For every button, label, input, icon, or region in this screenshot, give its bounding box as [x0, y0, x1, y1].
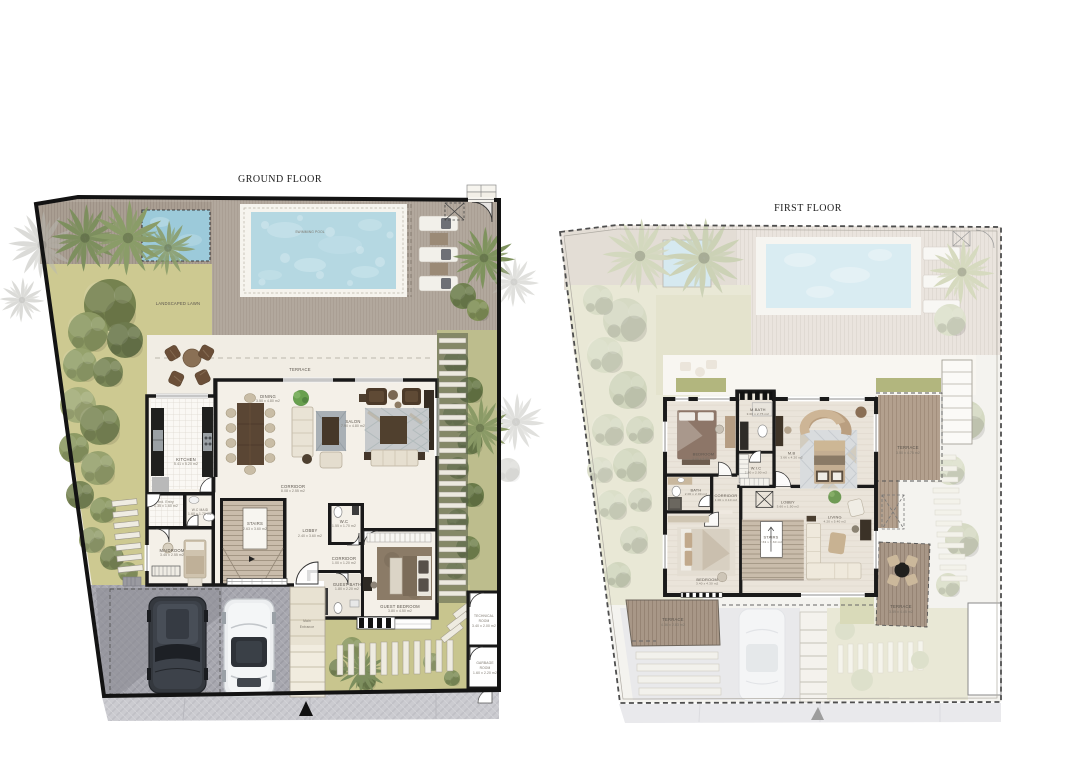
svg-text:3.66 x 4.80 m2: 3.66 x 4.80 m2: [692, 456, 715, 460]
svg-text:3.45 x 2.55 m2: 3.45 x 2.55 m2: [160, 553, 184, 557]
svg-text:3.80 x 4.50 m2: 3.80 x 4.50 m2: [388, 609, 412, 613]
svg-text:Entrance: Entrance: [300, 625, 314, 629]
svg-text:1.60 x 1.70 m2: 1.60 x 1.70 m2: [188, 512, 212, 516]
svg-text:3.00 x 2.75 m2: 3.00 x 2.75 m2: [747, 412, 770, 416]
svg-text:ROOM: ROOM: [479, 619, 490, 623]
svg-text:2.63 x 3.60 m2: 2.63 x 3.60 m2: [243, 527, 267, 531]
svg-text:STAIRS: STAIRS: [247, 521, 263, 526]
svg-text:5.41 x 5.20 m2: 5.41 x 5.20 m2: [174, 462, 198, 466]
svg-text:2.00 x 2.00 m2: 2.00 x 2.00 m2: [685, 492, 708, 496]
svg-text:3.50 x 4.75 m2: 3.50 x 4.75 m2: [896, 451, 920, 455]
svg-text:1.55 x 1.70 m2: 1.55 x 1.70 m2: [332, 524, 356, 528]
svg-text:Main: Main: [303, 619, 311, 623]
svg-text:TERRACE: TERRACE: [289, 367, 310, 372]
svg-text:TERRACE: TERRACE: [897, 445, 918, 450]
svg-text:FIRST FLOOR: FIRST FLOOR: [774, 203, 842, 214]
svg-text:7.90 x 4.80 m2: 7.90 x 4.80 m2: [341, 424, 365, 428]
svg-text:4.20 x 5.40 m2: 4.20 x 5.40 m2: [824, 519, 847, 523]
svg-text:1.00 x 3.10 m2: 1.00 x 3.10 m2: [715, 498, 738, 502]
svg-text:LOBBY: LOBBY: [303, 528, 318, 533]
svg-text:TERRACE: TERRACE: [890, 604, 911, 609]
svg-text:GROUND FLOOR: GROUND FLOOR: [238, 174, 322, 185]
svg-text:1.60 x 2.20 m2: 1.60 x 2.20 m2: [473, 671, 497, 675]
svg-text:1.80 x 2.20 m2: 1.80 x 2.20 m2: [335, 587, 359, 591]
svg-text:TECHNICAL: TECHNICAL: [474, 614, 494, 618]
svg-text:SWIMMING POOL: SWIMMING POOL: [295, 230, 325, 234]
svg-text:LANDSCAPED LAWN: LANDSCAPED LAWN: [156, 301, 201, 306]
svg-text:1.35 x 1.60 m2: 1.35 x 1.60 m2: [154, 504, 178, 508]
svg-text:3.66 x 4.20 m2: 3.66 x 4.20 m2: [780, 455, 803, 459]
svg-text:3.40 x 2.00 m2: 3.40 x 2.00 m2: [472, 624, 496, 628]
svg-text:8.08 x 2.55 m2: 8.08 x 2.55 m2: [281, 489, 305, 493]
svg-text:3.60 x 1.50 m2: 3.60 x 1.50 m2: [777, 504, 800, 508]
svg-text:TERRACE: TERRACE: [662, 617, 683, 622]
svg-text:2.40 x 3.60 m2: 2.40 x 3.60 m2: [298, 534, 322, 538]
svg-text:3.59 x 4.45 m2: 3.59 x 4.45 m2: [889, 610, 913, 614]
svg-text:1.00 x 1.20 m2: 1.00 x 1.20 m2: [332, 561, 356, 565]
svg-text:4.36 x 2.83 m2: 4.36 x 2.83 m2: [661, 623, 685, 627]
svg-text:GARBAGE: GARBAGE: [476, 661, 494, 665]
svg-text:3.40 x 4.30 m2: 3.40 x 4.30 m2: [696, 582, 719, 586]
svg-text:ROOM: ROOM: [480, 666, 491, 670]
svg-text:2.80 x 2.00 m2: 2.80 x 2.00 m2: [745, 470, 768, 474]
svg-text:2.63 x 3.60 m2: 2.63 x 3.60 m2: [760, 540, 783, 544]
svg-text:3.50 x 4.80 m2: 3.50 x 4.80 m2: [256, 399, 280, 403]
svg-text:STAIRS: STAIRS: [763, 534, 778, 539]
